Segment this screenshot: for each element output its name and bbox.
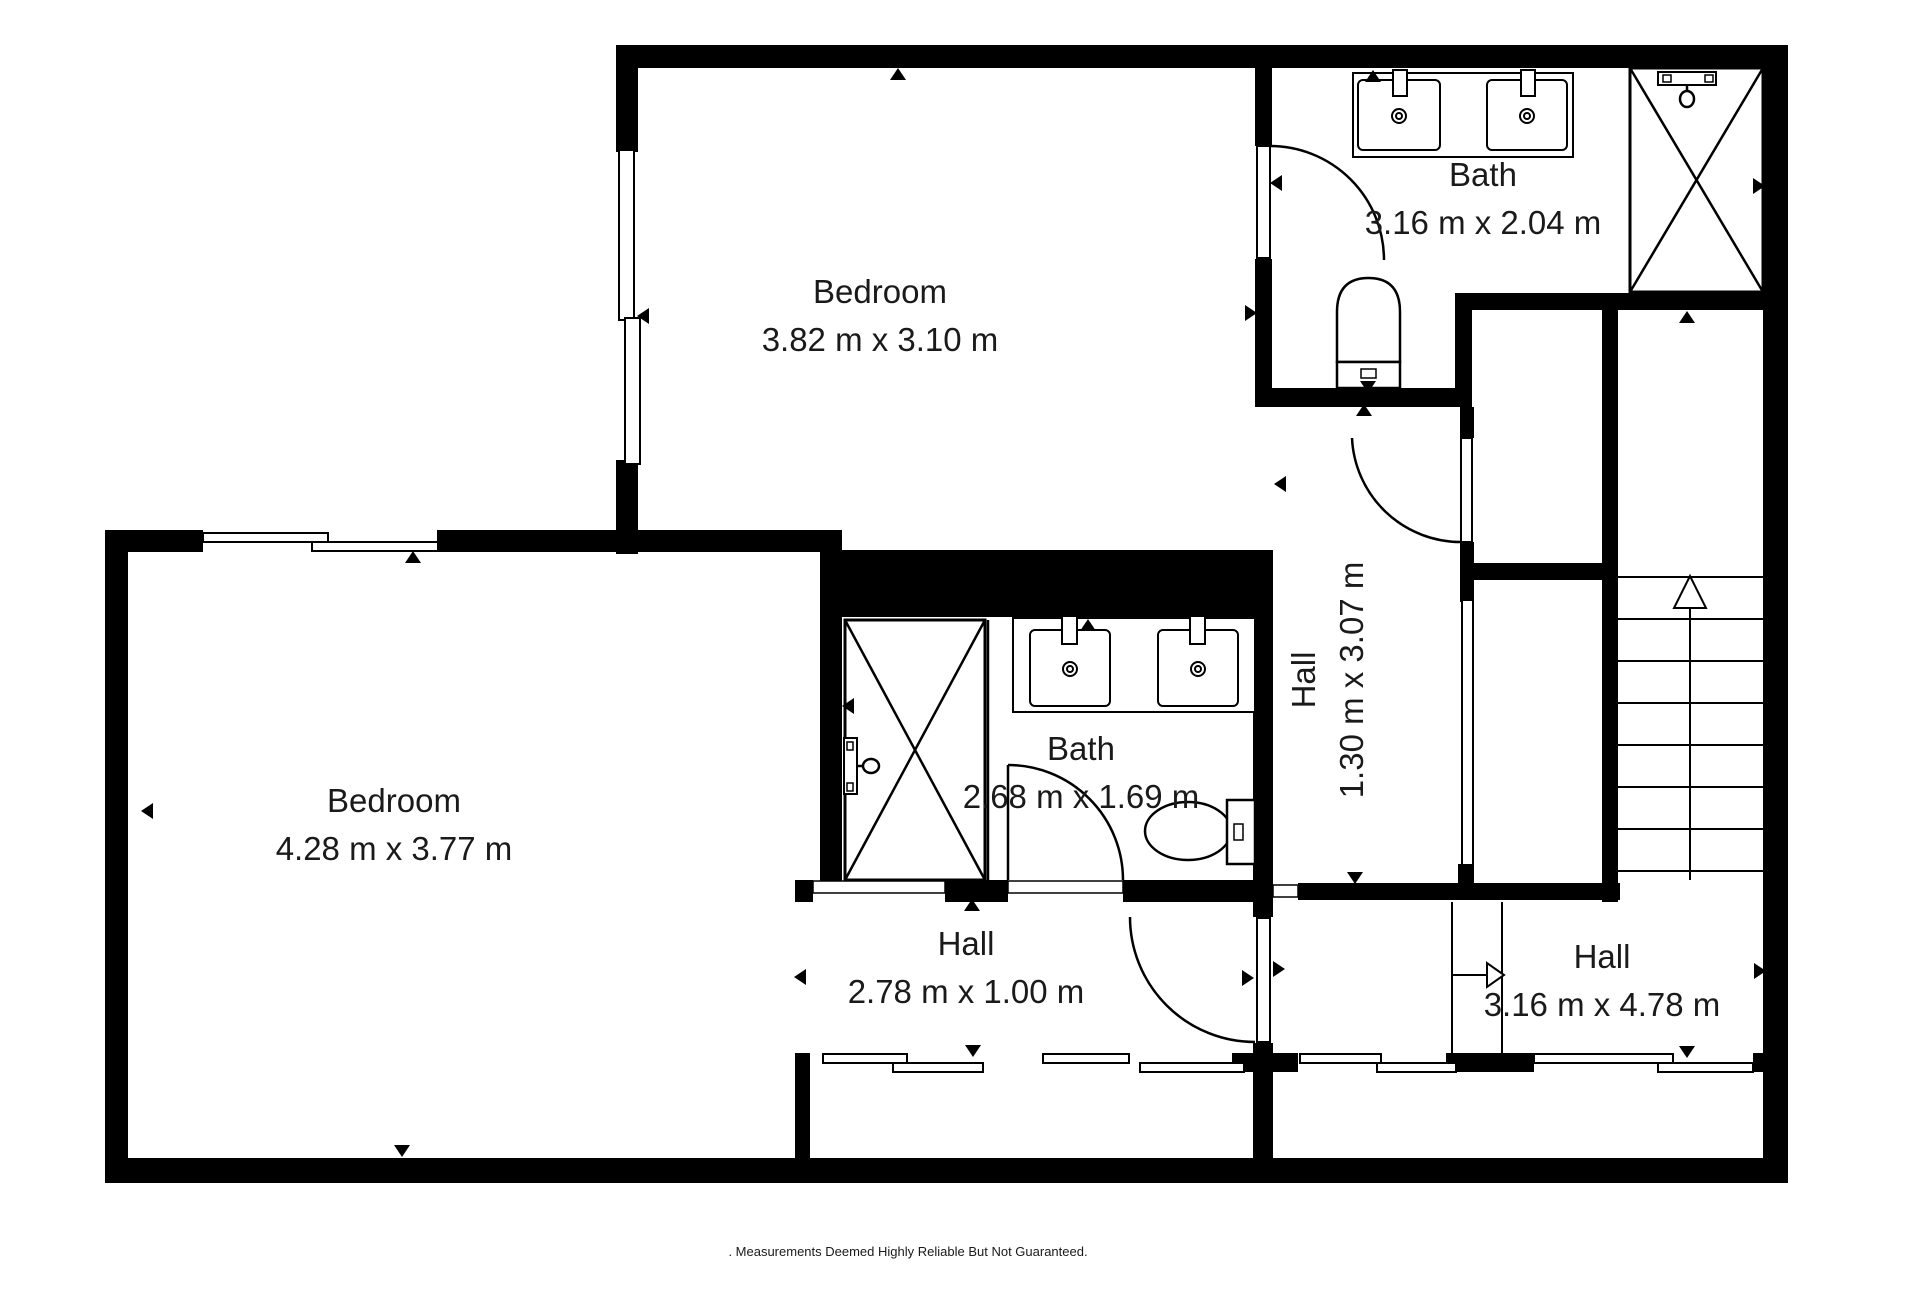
- wall-bedroombottom-top-right: [437, 530, 842, 552]
- wall-closet-left-upper: [1460, 407, 1474, 438]
- shower-middle: [863, 759, 879, 773]
- window-bedroombottom-1: [203, 533, 328, 542]
- footer-disclaimer: . Measurements Deemed Highly Reliable Bu…: [728, 1244, 1087, 1259]
- wall-bedroomtop-left-upper: [616, 45, 638, 152]
- window-band-4: [1140, 1063, 1244, 1072]
- wall-exterior-top: [616, 45, 1788, 68]
- room-dimensions: 1.30 m x 3.07 m: [1333, 562, 1370, 799]
- window-band-5: [1300, 1054, 1381, 1063]
- window-bedroomtop-left-1: [619, 150, 634, 320]
- wall-lower-divider: [1253, 1072, 1273, 1162]
- wall-exterior-left: [105, 530, 128, 1180]
- wall-below-shower: [1460, 293, 1763, 310]
- door-halls-leaf: [1257, 918, 1270, 1042]
- window-bedroomtop-left-2: [625, 318, 640, 464]
- wall-bathtop-bottom: [1255, 388, 1460, 407]
- door-closet-leaf: [1461, 438, 1472, 542]
- window-band-2: [893, 1063, 983, 1072]
- floor-plan-drawing: Bedroom3.82 m x 3.10 mBath3.16 m x 2.04 …: [0, 0, 1920, 1290]
- shower-top-right: [1680, 91, 1694, 107]
- wall-bedroom-bath-divider: [820, 552, 842, 882]
- window-bedroombottom-2: [312, 542, 438, 551]
- window-hall-glass: [1462, 600, 1473, 865]
- room-dimensions-bedroom-bottom: 4.28 m x 3.77 m: [276, 830, 513, 867]
- shower-top-right: [1663, 75, 1671, 82]
- wall-lower-left: [795, 1053, 810, 1162]
- wall-bedroombottom-top-left: [105, 530, 203, 552]
- window-band-3: [1043, 1054, 1129, 1063]
- wall-hall-middle-stub: [795, 880, 813, 902]
- wall-bathtop-left-upper: [1255, 68, 1272, 146]
- wall-exterior-bottom: [105, 1158, 1788, 1183]
- wall-closet-stairs-divider: [1602, 310, 1618, 902]
- wall-bath-middle-bottom-right: [1123, 880, 1253, 902]
- wall-closet-bottom: [1460, 563, 1602, 580]
- shower-middle: [847, 783, 853, 791]
- room-name-hall-middle: Hall: [938, 925, 995, 962]
- wall-band-block-stair: [1446, 1053, 1534, 1072]
- opening-bath-middle-door: [1008, 881, 1123, 893]
- vanity-top: [1521, 70, 1535, 96]
- room-name-bath-top: Bath: [1449, 156, 1517, 193]
- floor-plan-page: Bedroom3.82 m x 3.10 mBath3.16 m x 2.04 …: [0, 0, 1920, 1290]
- room-name-bath-middle: Bath: [1047, 730, 1115, 767]
- vanity-top: [1393, 70, 1407, 96]
- window-band-7: [1534, 1054, 1673, 1063]
- wall-hallright-top: [1298, 883, 1620, 900]
- room-name-bedroom-bottom: Bedroom: [327, 782, 461, 819]
- toilet-top: [1361, 369, 1376, 378]
- shower-top-right: [1705, 75, 1713, 82]
- window-band-8: [1658, 1063, 1753, 1072]
- vanity-middle: [1062, 616, 1077, 644]
- room-name-bedroom-top: Bedroom: [813, 273, 947, 310]
- toilet-middle: [1234, 824, 1243, 840]
- toilet-top: [1337, 278, 1400, 362]
- vanity-middle: [1190, 616, 1205, 644]
- room-dimensions-bath-top: 3.16 m x 2.04 m: [1365, 204, 1602, 241]
- room-dimensions-hall-middle: 2.78 m x 1.00 m: [848, 973, 1085, 1010]
- wall-bath-middle-bottom-left: [945, 880, 1008, 902]
- window-band-6: [1377, 1063, 1456, 1072]
- door-bath-top-leaf: [1257, 146, 1270, 258]
- shower-middle: [847, 742, 853, 750]
- room-dimensions-bath-middle: 2.68 m x 1.69 m: [963, 778, 1200, 815]
- wall-bath-middle-top-thick: [820, 550, 1273, 617]
- room-name-hall-right: Hall: [1574, 938, 1631, 975]
- wall-band-block-right: [1753, 1053, 1765, 1072]
- wall-exterior-right: [1763, 45, 1788, 1183]
- room-name: Hall: [1285, 652, 1322, 709]
- opening-bedroom-hall: [813, 881, 945, 893]
- room-dimensions-bedroom-top: 3.82 m x 3.10 m: [762, 321, 999, 358]
- wall-connector: [1455, 293, 1472, 407]
- wall-bathtop-left-lower: [1255, 259, 1272, 407]
- wall-stub-above-band: [1458, 864, 1474, 884]
- opening-hall-corner: [1273, 885, 1298, 897]
- window-band-1: [823, 1054, 907, 1063]
- room-dimensions-hall-right: 3.16 m x 4.78 m: [1484, 986, 1721, 1023]
